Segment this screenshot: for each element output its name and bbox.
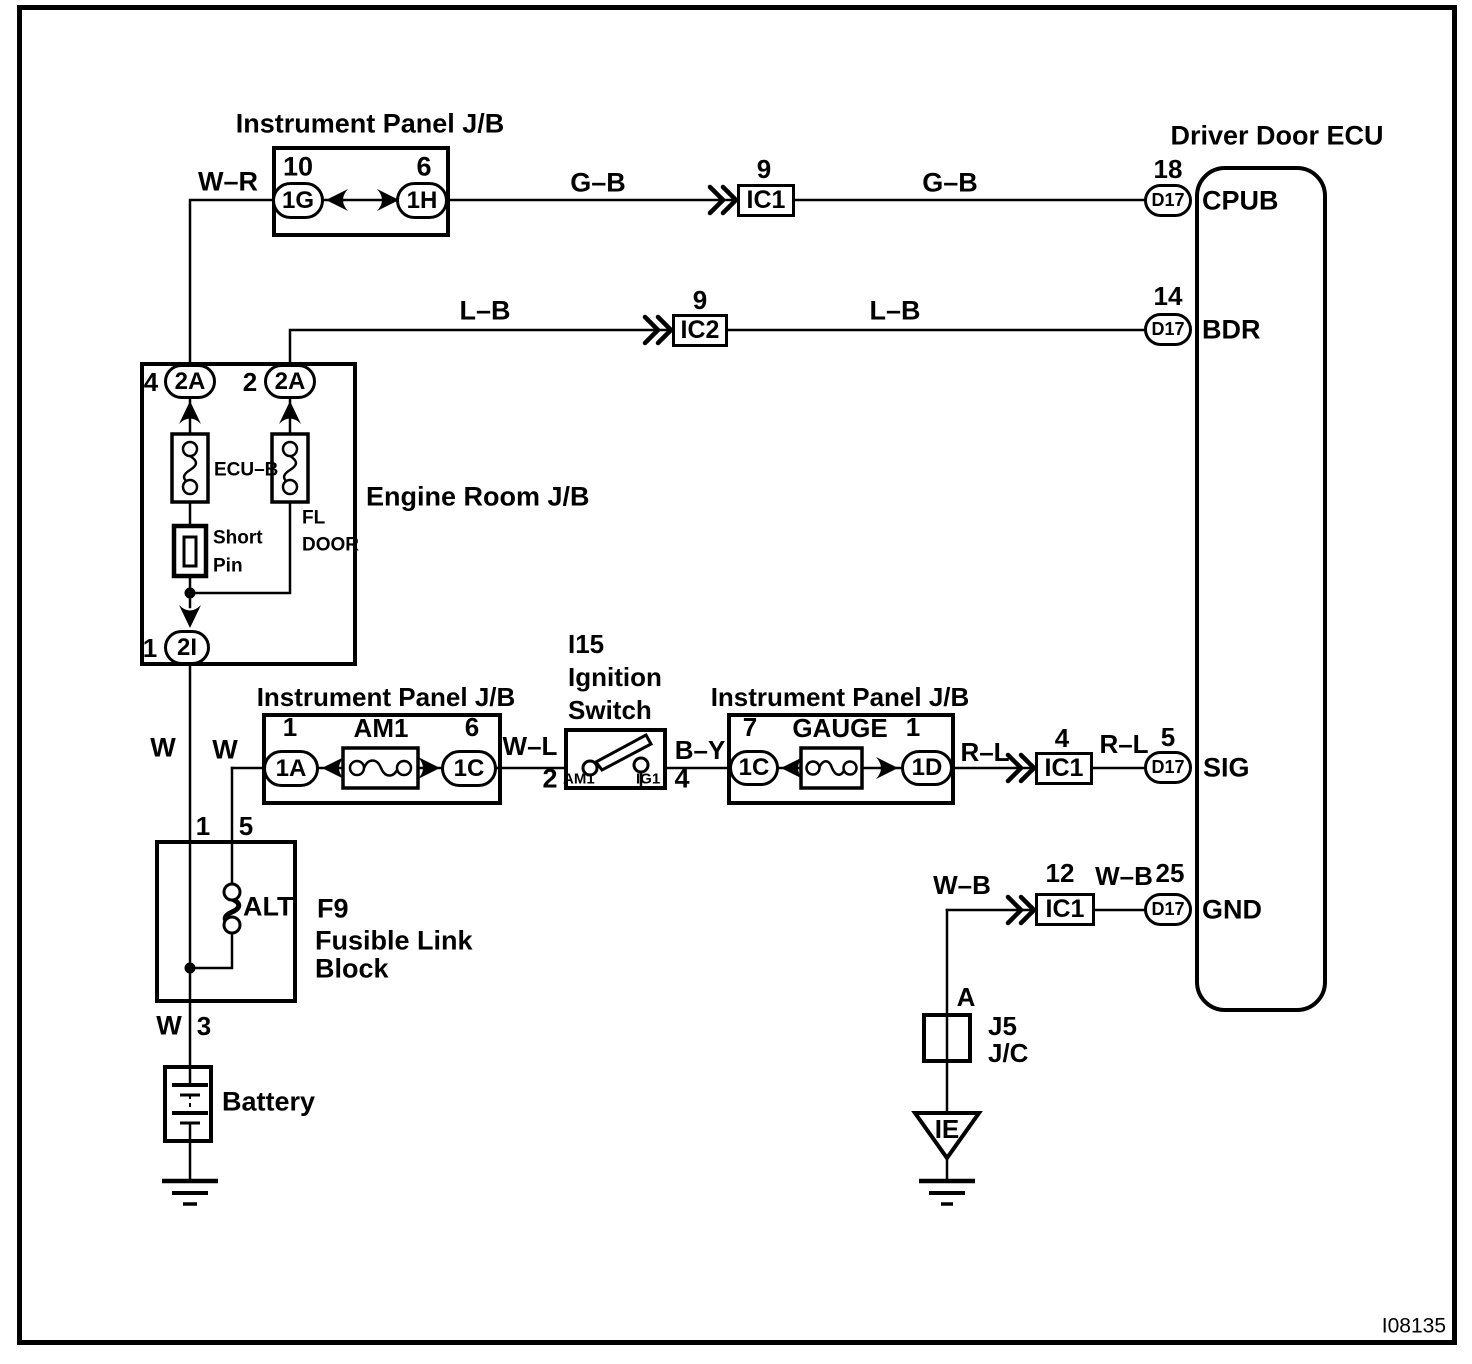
connector-1a: 1A [263, 750, 319, 787]
fusible-block-label-3: Block [315, 956, 389, 983]
fusible-link-alt-label: ALT [243, 894, 293, 921]
pin-num-j5-a: A [957, 984, 976, 1010]
pin-num-ic1-gnd: 12 [1046, 860, 1075, 886]
pin-num-2i: 1 [143, 635, 157, 661]
pin-num-bdr: 14 [1154, 283, 1183, 309]
connector-2i: 2I [164, 630, 210, 665]
fuse-gauge-label: GAUGE [792, 715, 887, 741]
ecu-terminal-sig: SIG [1203, 755, 1250, 782]
wire-label-w-main: W [150, 735, 175, 762]
connector-d17-gnd: D17 [1144, 893, 1192, 926]
ignition-switch-code: I15 [568, 631, 604, 657]
pin-num-2a-left: 4 [144, 369, 158, 395]
driver-door-ecu-box [1195, 166, 1327, 1012]
fuse-fl-door-label-2: DOOR [302, 536, 359, 555]
ecu-terminal-cpub: CPUB [1202, 188, 1279, 215]
ecu-terminal-gnd: GND [1202, 897, 1262, 924]
pin-num-ic1-sig: 4 [1055, 725, 1069, 751]
splice-ic1-gnd: IC1 [1035, 893, 1095, 926]
wire-label-r-l-right: R–L [1099, 731, 1148, 757]
short-pin-label-2: Pin [213, 557, 243, 576]
pin-num-1d: 1 [906, 714, 920, 740]
connector-1h: 1H [396, 182, 448, 219]
pin-num-fusible-5: 5 [239, 813, 253, 839]
wire-label-l-b-left: L–B [459, 298, 510, 325]
wire-label-w-r: W–R [198, 169, 258, 196]
battery-label: Battery [222, 1089, 315, 1116]
connector-d17-sig: D17 [1144, 751, 1192, 784]
connector-2a-right: 2A [264, 364, 316, 399]
pin-num-1c-am1: 6 [465, 714, 479, 740]
figure-id: I08135 [1382, 1316, 1446, 1337]
jb-gauge-title: Instrument Panel J/B [711, 684, 970, 710]
splice-ic1-sig: IC1 [1035, 752, 1093, 785]
pin-num-1h: 6 [416, 154, 431, 181]
pin-num-fusible-1: 1 [196, 813, 210, 839]
connector-d17-cpub: D17 [1144, 184, 1192, 217]
pin-num-1a: 1 [283, 714, 297, 740]
jb-am1-title: Instrument Panel J/B [257, 684, 516, 710]
pin-num-fusible-3: 3 [197, 1013, 211, 1039]
ignition-switch-name-1: Ignition [568, 664, 662, 690]
short-pin-label-1: Short [213, 529, 263, 548]
pin-num-ic2: 9 [693, 287, 707, 313]
pin-num-gnd: 25 [1156, 860, 1185, 886]
fuse-am1-label: AM1 [354, 715, 409, 741]
connector-1g: 1G [272, 182, 324, 219]
fuse-ecu-b-label: ECU–B [214, 461, 278, 480]
wire-label-w-branch: W [212, 737, 237, 764]
battery-box [163, 1065, 213, 1143]
ecu-terminal-bdr: BDR [1202, 317, 1261, 344]
ecu-title: Driver Door ECU [1170, 123, 1383, 150]
battery-ground-symbol [162, 1181, 218, 1204]
wiring-diagram: 1G 1H D17 D17 2A 2A 2I 1A 1C 1C 1D D17 D… [0, 0, 1472, 1364]
junction-connector-j5-box [922, 1013, 972, 1063]
ie-ground-label: IE [935, 1116, 960, 1142]
pin-num-ic1-top: 9 [757, 156, 771, 182]
fusible-link-block-box [155, 840, 297, 1003]
wire-label-g-b-right: G–B [922, 170, 978, 197]
connector-1c-gauge: 1C [729, 750, 779, 786]
wire-label-r-l-left: R–L [960, 739, 1009, 765]
connector-1c-am1: 1C [441, 750, 497, 787]
switch-terminal-ig1-label: IG1 [636, 772, 660, 787]
wire-label-b-y: B–Y [675, 737, 726, 763]
jb-top-title: Instrument Panel J/B [236, 111, 505, 138]
pin-num-1c-gauge: 7 [743, 714, 757, 740]
pin-num-cpub: 18 [1154, 156, 1183, 182]
wire-label-w-l: W–L [503, 733, 558, 759]
pin-num-2a-right: 2 [243, 369, 257, 395]
wire-label-w-b-right: W–B [1095, 863, 1153, 889]
wire-label-w-battery: W [156, 1013, 181, 1040]
fuse-fl-door-label-1: FL [302, 509, 325, 528]
switch-terminal-am1-label: AM1 [563, 772, 595, 787]
fusible-block-label-1: F9 [317, 896, 349, 923]
engine-jb-title: Engine Room J/B [366, 484, 590, 511]
connector-1d: 1D [901, 750, 953, 786]
wire-label-w-b-left: W–B [933, 872, 991, 898]
connector-d17-bdr: D17 [1144, 313, 1192, 346]
j5-label-2: J/C [988, 1040, 1028, 1066]
splice-ic2: IC2 [672, 314, 728, 347]
fusible-block-label-2: Fusible Link [315, 928, 473, 955]
j5-label-1: J5 [988, 1013, 1017, 1039]
splice-ic1-top: IC1 [737, 184, 795, 217]
pin-num-switch-out: 4 [674, 766, 689, 793]
pin-num-switch-in: 2 [542, 766, 557, 793]
connector-2a-left: 2A [164, 364, 216, 399]
wire-label-l-b-right: L–B [869, 298, 920, 325]
ignition-switch-name-2: Switch [568, 697, 652, 723]
pin-num-sig: 5 [1161, 724, 1175, 750]
pin-num-1g: 10 [283, 154, 313, 181]
wire-label-g-b-left: G–B [570, 170, 626, 197]
